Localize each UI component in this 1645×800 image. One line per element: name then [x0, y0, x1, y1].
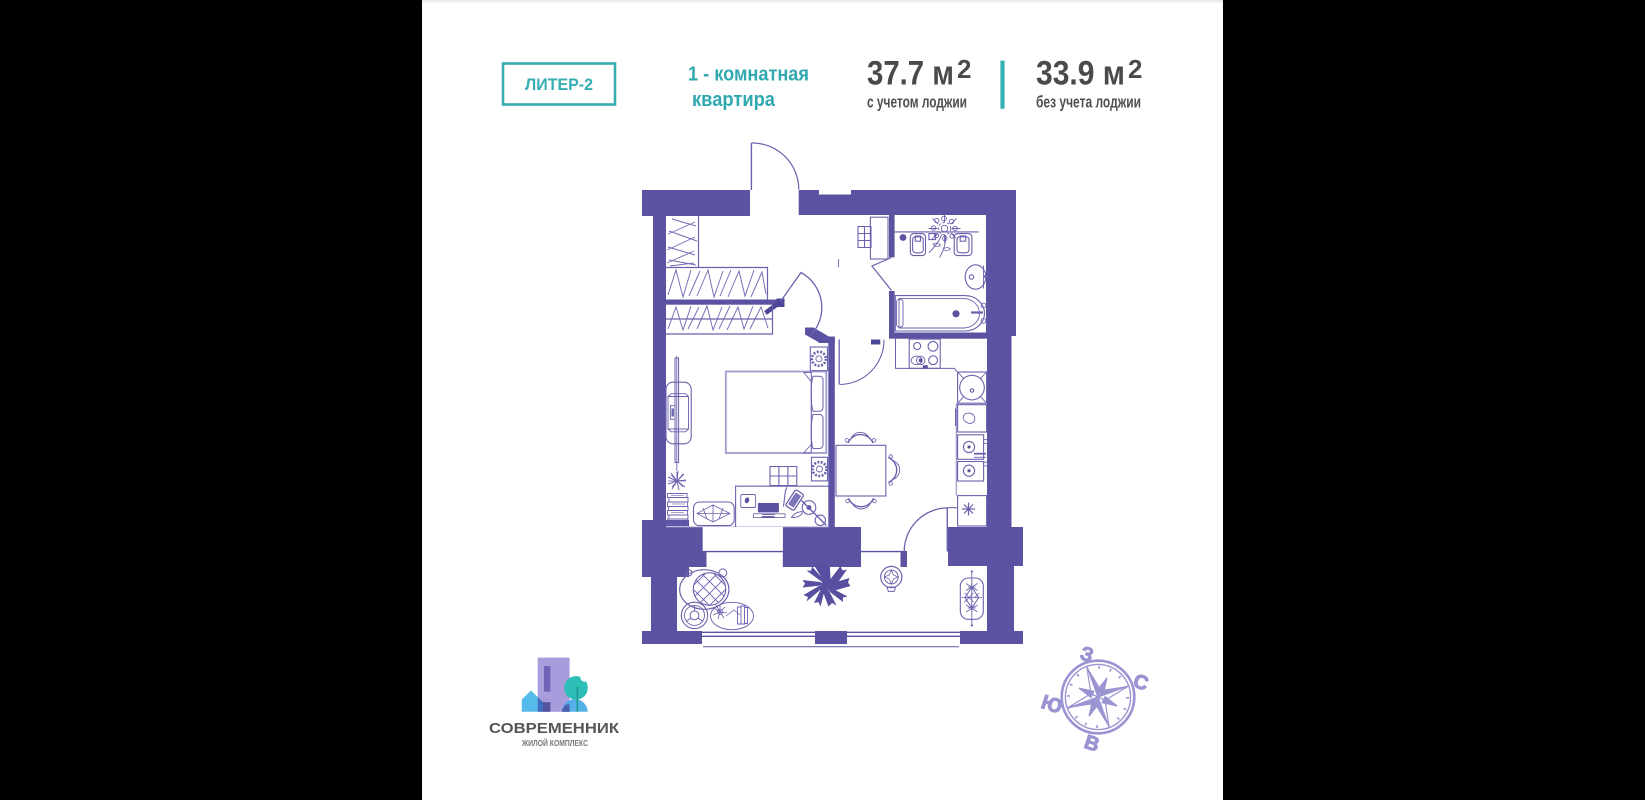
svg-text:1 - комнатная: 1 - комнатная	[688, 63, 809, 85]
svg-text:2: 2	[957, 54, 971, 84]
svg-text:37.7 м: 37.7 м	[867, 55, 954, 93]
svg-text:с учетом лоджии: с учетом лоджии	[867, 93, 967, 112]
svg-text:2: 2	[1128, 54, 1142, 84]
svg-text:без учета лоджии: без учета лоджии	[1036, 93, 1141, 112]
svg-text:СОВРЕМЕННИК: СОВРЕМЕННИК	[489, 720, 620, 737]
svg-text:33.9 м: 33.9 м	[1036, 55, 1125, 93]
svg-text:ЖИЛОЙ КОМПЛЕКС: ЖИЛОЙ КОМПЛЕКС	[521, 739, 588, 748]
svg-text:квартира: квартира	[692, 89, 776, 111]
svg-text:ЛИТЕР-2: ЛИТЕР-2	[525, 75, 593, 94]
